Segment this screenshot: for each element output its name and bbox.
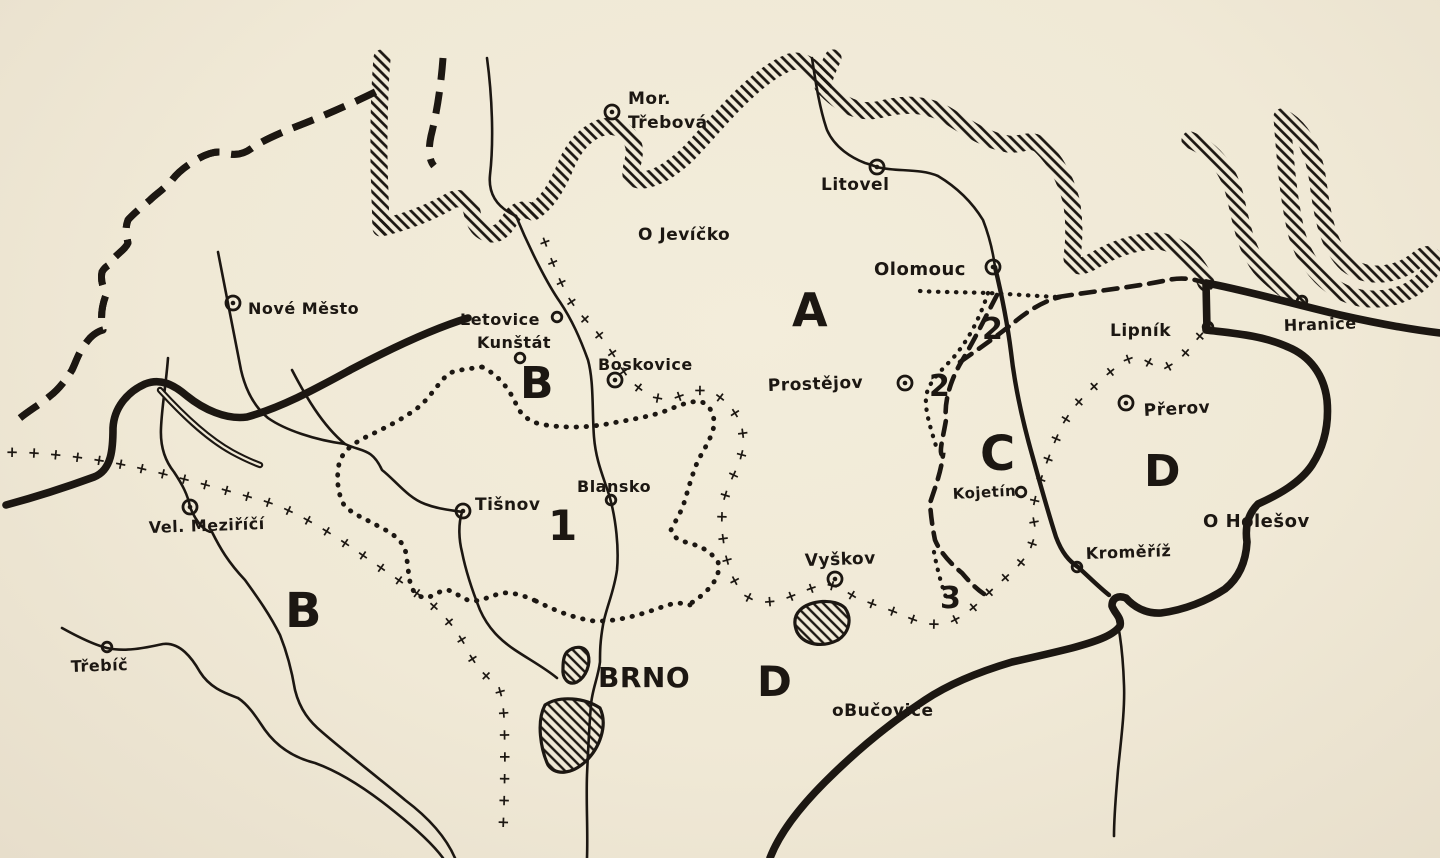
place-label: Hranice [1283,313,1356,335]
town-circle-marker [1016,487,1026,497]
road-double [160,390,260,465]
place-label: Tišnov [475,495,540,515]
town-center-dot [875,165,880,170]
zone-number-2: 2 [929,369,950,404]
moravia-sketch-map: + + + + + + + + + + + + + + + + + + + + … [0,0,1440,858]
place-kromeriz: Kroměříž [1072,541,1171,572]
region-letter-d: D [1144,446,1181,497]
place-label: Kroměříž [1085,541,1171,563]
place-nove-mesto: Nové Město [226,296,359,318]
place-label: Letovice [460,310,540,329]
chain-southwest-crosses: + + + + + + + + + + + + + + + + + + + + … [0,0,514,838]
place-label: Třebová [628,113,708,133]
place-prostejov: Prostějov [767,373,912,396]
town-center-dot [610,110,615,115]
region-letter-c: C [980,426,1015,482]
place-label: Mor. [628,89,671,109]
place-label: Přerov [1143,398,1210,421]
place-label: oBučovice [832,701,934,721]
place-label: Prostějov [767,373,863,396]
place-blansko: Blansko [577,477,651,505]
road-double-inner [160,390,260,465]
chain-southwest [6,452,505,840]
region-letter-b: B [285,583,322,639]
chain-boskovice-crosses: + + + + + + + + + + + + + + + + + + + + … [0,0,1212,633]
zone-number-3: 3 [940,581,961,616]
place-kojetin: Kojetín [952,482,1026,503]
town-center-dot [461,509,466,514]
place-brno: BRNO [598,661,690,694]
region-letter-a: A [792,283,828,337]
river-svitava-upper [487,58,516,216]
place-label: Nové Město [248,299,359,318]
zone-number-1: 1 [548,501,577,550]
town-center-dot [231,301,236,306]
border-top-vertical [429,58,443,166]
place-trebic: Třebíč [70,642,128,676]
place-letovice: Letovice [460,310,562,329]
place-label: Kunštát [477,333,551,352]
place-label: O Holešov [1203,511,1310,532]
dashed-olomouc-lipnik [1058,279,1205,297]
place-label: Boskovice [598,355,693,374]
town-center-dot [613,378,618,383]
hatched-blobs [540,601,849,772]
place-label: Olomouc [874,259,966,280]
place-label: Blansko [577,477,651,496]
town-center-dot [991,265,996,270]
place-olomouc: Olomouc [874,259,1000,280]
place-holesov: O Holešov [1203,511,1310,532]
place-label: Litovel [821,175,889,195]
place-label: Lipník [1110,321,1171,341]
place-prerov: Přerov [1119,396,1211,421]
town-center-dot [188,505,193,510]
region-letter-d: D [757,657,792,706]
border-tick-bars [20,88,383,418]
river-morava-upper [812,58,995,267]
town-center-dot [833,577,838,582]
town-circle-marker [552,312,562,322]
vyskov-blob [795,601,849,644]
place-label: Vel. Meziříčí [148,514,266,537]
place-label: Vyškov [804,549,876,571]
major-rivers [6,283,1440,858]
dotted-brno-north [536,601,690,621]
place-markers-and-labels: Mor.TřebováLitovelO JevíčkoOlomoucProstě… [70,89,1356,721]
place-label: Kojetín [952,482,1016,503]
place-label: Třebíč [70,655,128,676]
place-jevicko: O Jevíčko [638,225,730,245]
chain-southwest-dashes [6,452,505,840]
town-center-dot [903,381,908,386]
zone-number-2: 2 [982,312,1003,347]
place-litovel: Litovel [821,160,889,195]
brno-blob-large [540,699,603,772]
region-letter-b: B [520,358,554,409]
map-canvas: + + + + + + + + + + + + + + + + + + + + … [0,0,1440,858]
dotted-boundaries [338,291,1058,621]
place-tisnov: Tišnov [456,495,540,518]
place-label: BRNO [598,661,690,694]
town-center-dot [1124,401,1129,406]
place-label: O Jevíčko [638,225,730,245]
place-bucovice: oBučovice [832,701,934,721]
brno-blob-small [563,647,589,683]
